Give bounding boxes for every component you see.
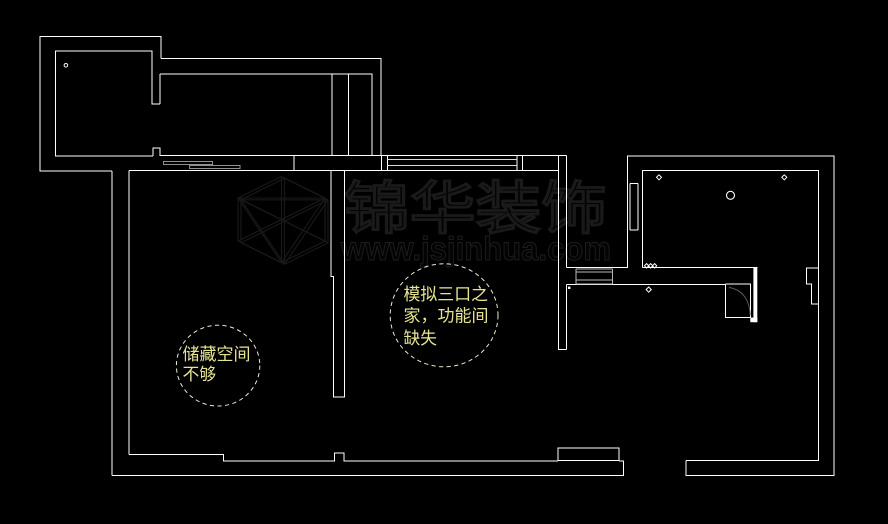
svg-text:储藏空间: 储藏空间: [183, 345, 251, 364]
svg-text:www.jsjinhua.com: www.jsjinhua.com: [340, 230, 611, 267]
svg-text:家，功能间: 家，功能间: [404, 307, 489, 326]
svg-text:不够: 不够: [183, 365, 217, 384]
svg-text:缺失: 缺失: [404, 329, 438, 348]
svg-text:模拟三口之: 模拟三口之: [404, 285, 489, 304]
